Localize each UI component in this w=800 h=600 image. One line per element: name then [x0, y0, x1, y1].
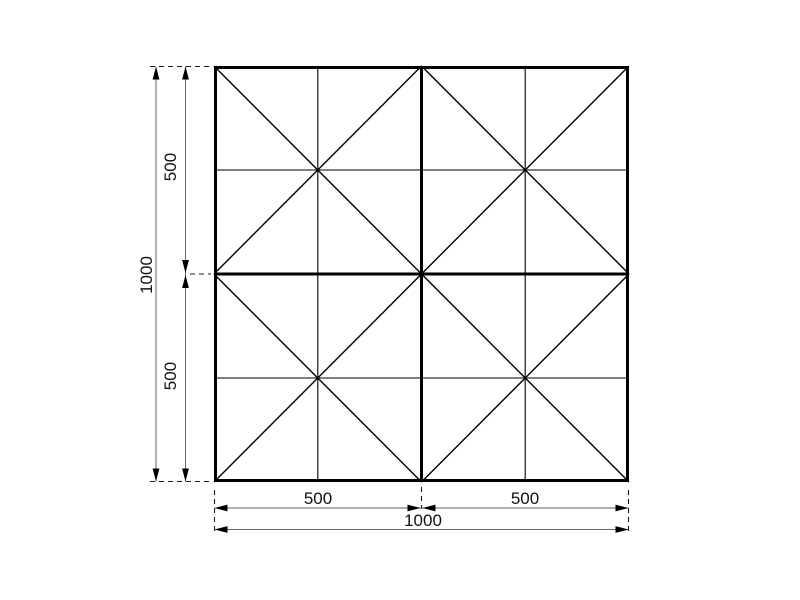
bottom-dimensions: 500 500 1000 — [215, 487, 629, 534]
dim-label-left-500-bottom: 500 — [161, 362, 180, 390]
arrowhead-down — [182, 469, 189, 482]
dim-label-bottom-500-right: 500 — [511, 489, 539, 508]
dim-label-bottom-1000: 1000 — [404, 511, 442, 530]
arrowhead-up — [153, 67, 160, 80]
dim-label-bottom-500-left: 500 — [304, 489, 332, 508]
arrowhead-left — [215, 505, 228, 512]
dim-label-left-1000: 1000 — [137, 256, 156, 294]
arrowhead-left — [215, 526, 228, 533]
arrowhead-right — [616, 505, 629, 512]
arrowhead-up — [182, 275, 189, 288]
left-dimensions: 500 500 1000 — [137, 67, 211, 482]
drawing-canvas: 500 500 1000 500 500 1000 — [0, 0, 800, 600]
dim-label-left-500-top: 500 — [161, 153, 180, 181]
arrowhead-down — [182, 260, 189, 273]
arrowhead-right — [616, 526, 629, 533]
arrowhead-down — [153, 469, 160, 482]
structural-grid-drawing: 500 500 1000 500 500 1000 — [0, 0, 800, 600]
dimension-arrowheads-left — [153, 67, 189, 482]
frame-drawing — [214, 66, 629, 482]
arrowhead-up — [182, 67, 189, 80]
